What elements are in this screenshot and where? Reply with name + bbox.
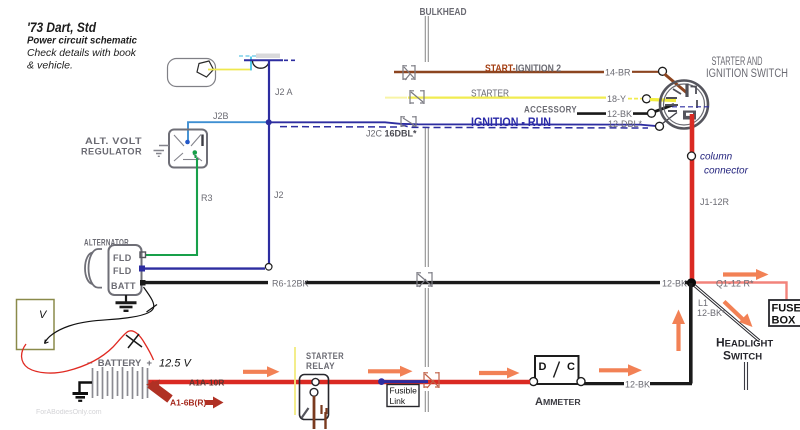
svg-text:ACCESSORY: ACCESSORY: [524, 105, 577, 115]
svg-text:HEADLIGHT: HEADLIGHT: [716, 336, 773, 350]
svg-text:ALT. VOLT: ALT. VOLT: [85, 136, 142, 146]
svg-text:IGNITION - RUN: IGNITION - RUN: [471, 115, 551, 129]
svg-text:STARTER AND: STARTER AND: [712, 56, 763, 68]
svg-text:column: column: [700, 152, 733, 163]
svg-text:C: C: [567, 361, 575, 373]
svg-text:14-BR: 14-BR: [605, 68, 631, 78]
svg-text:12-BK: 12-BK: [662, 279, 687, 289]
svg-text:J2: J2: [274, 190, 284, 200]
svg-text:12-BK*: 12-BK*: [697, 308, 726, 318]
svg-text:STARTER: STARTER: [471, 89, 509, 100]
svg-text:12-DBL*: 12-DBL*: [608, 119, 643, 129]
svg-text:Link: Link: [390, 396, 406, 406]
svg-text:FUSE: FUSE: [772, 303, 800, 315]
svg-text:BULKHEAD: BULKHEAD: [420, 7, 467, 18]
svg-text:J2B: J2B: [213, 111, 229, 121]
svg-text:AMMETER: AMMETER: [535, 396, 581, 408]
svg-text:12-BK: 12-BK: [607, 109, 632, 119]
svg-text:12.5 V: 12.5 V: [159, 358, 192, 370]
svg-text:J2C 16DBL*: J2C 16DBL*: [366, 129, 417, 139]
svg-text:Check details with book: Check details with book: [27, 47, 137, 59]
svg-text:BATT: BATT: [111, 281, 136, 291]
svg-text:BOX: BOX: [772, 315, 797, 327]
svg-text:IGNITION SWITCH: IGNITION SWITCH: [706, 68, 788, 80]
svg-text:& vehicle.: & vehicle.: [27, 60, 73, 72]
svg-text:STARTER: STARTER: [306, 351, 344, 361]
svg-text:J2 A: J2 A: [275, 87, 293, 97]
svg-text:12-BK: 12-BK: [625, 380, 650, 390]
svg-text:START-IGNITION 2: START-IGNITION 2: [485, 63, 561, 75]
svg-text:REGULATOR: REGULATOR: [81, 147, 142, 157]
svg-text:D: D: [539, 361, 547, 373]
svg-text:L1: L1: [698, 298, 708, 308]
svg-text:V: V: [39, 309, 48, 321]
svg-text:FLD: FLD: [113, 253, 132, 263]
svg-text:J1-12R: J1-12R: [700, 197, 730, 207]
svg-text:R6-12BK: R6-12BK: [272, 279, 309, 289]
svg-text:RELAY: RELAY: [306, 361, 335, 371]
svg-text:ForABodiesOnly.com: ForABodiesOnly.com: [36, 409, 102, 416]
svg-text:A1A-10R: A1A-10R: [189, 378, 224, 388]
svg-text:FLD: FLD: [113, 266, 132, 276]
svg-text:18-Y: 18-Y: [607, 94, 626, 104]
svg-text:Fusible: Fusible: [390, 386, 418, 396]
svg-text:'73 Dart, Std: '73 Dart, Std: [27, 19, 96, 35]
svg-text:SWITCH: SWITCH: [723, 349, 762, 363]
svg-text:Q1-12 R*: Q1-12 R*: [716, 279, 754, 289]
svg-text:Power circuit schematic: Power circuit schematic: [27, 35, 137, 47]
svg-text:connector: connector: [704, 166, 749, 177]
svg-text:A1-6B(R): A1-6B(R): [170, 398, 207, 408]
svg-text:R3: R3: [201, 193, 213, 203]
